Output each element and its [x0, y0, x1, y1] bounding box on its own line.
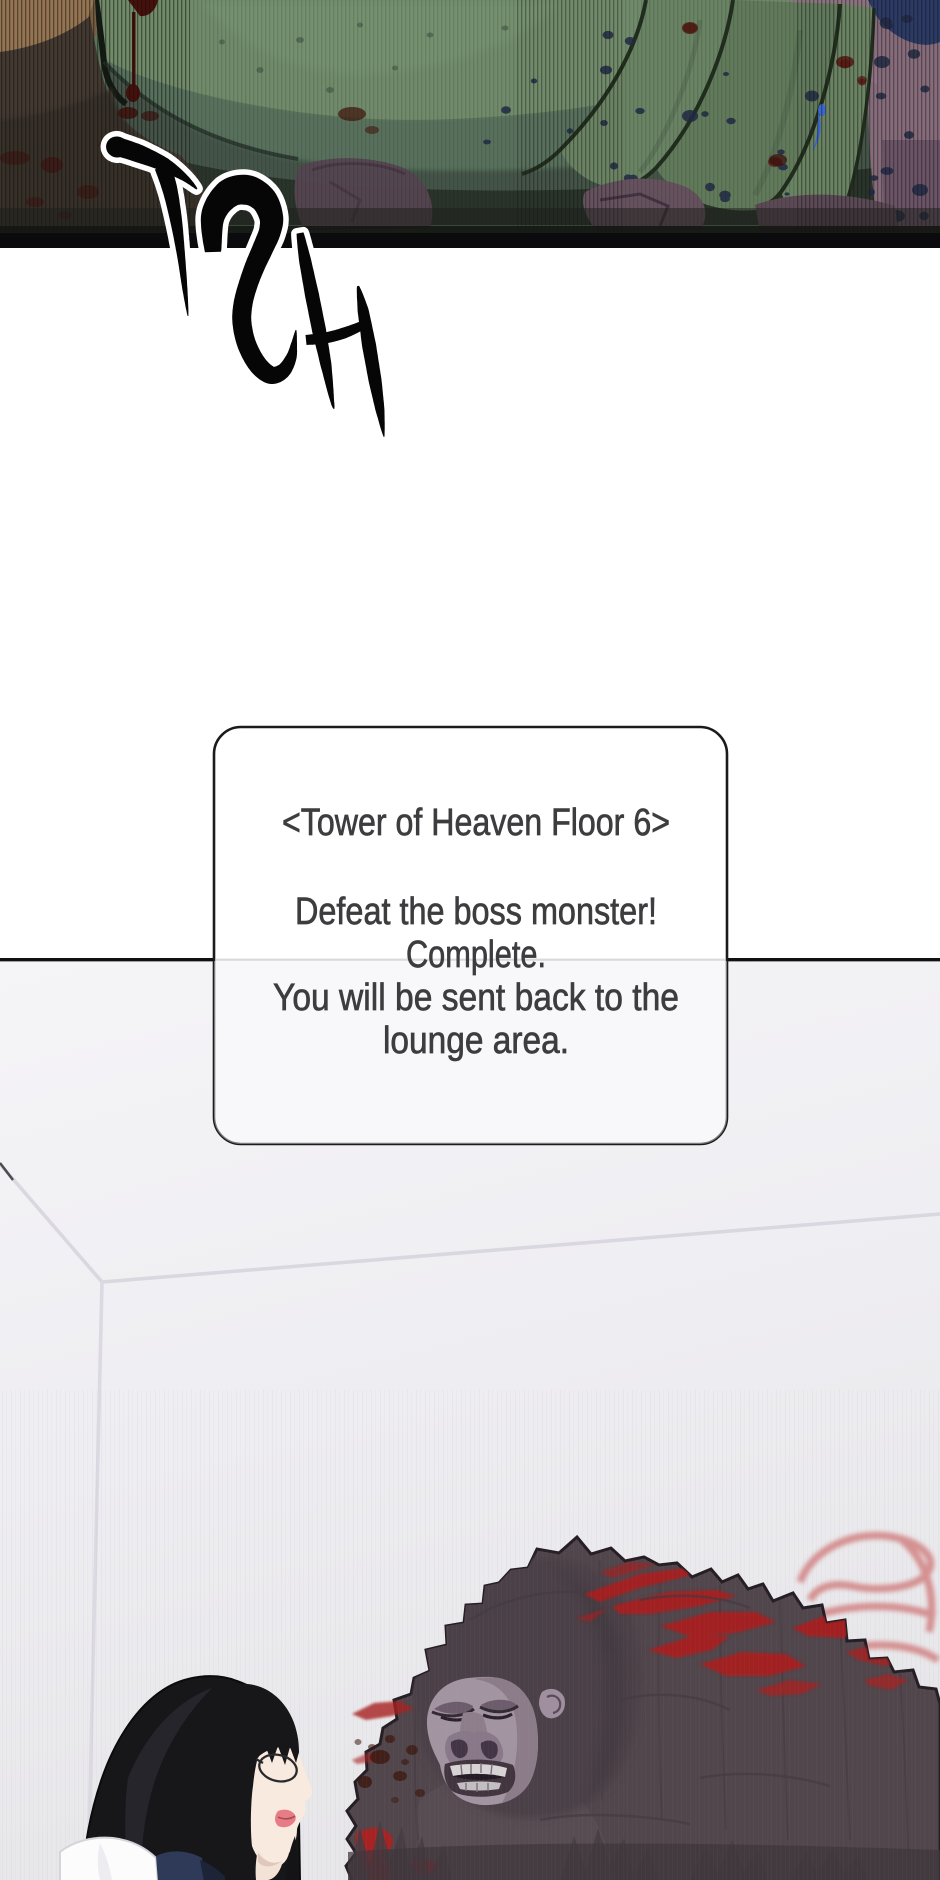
svg-text:<Tower of Heaven Floor 6>: <Tower of Heaven Floor 6> — [282, 802, 670, 844]
svg-text:lounge area.: lounge area. — [383, 1020, 569, 1062]
svg-text:Defeat the boss monster!: Defeat the boss monster! — [295, 891, 657, 933]
svg-text:You will be sent back to the: You will be sent back to the — [273, 977, 679, 1019]
svg-text:Complete.: Complete. — [406, 934, 546, 976]
